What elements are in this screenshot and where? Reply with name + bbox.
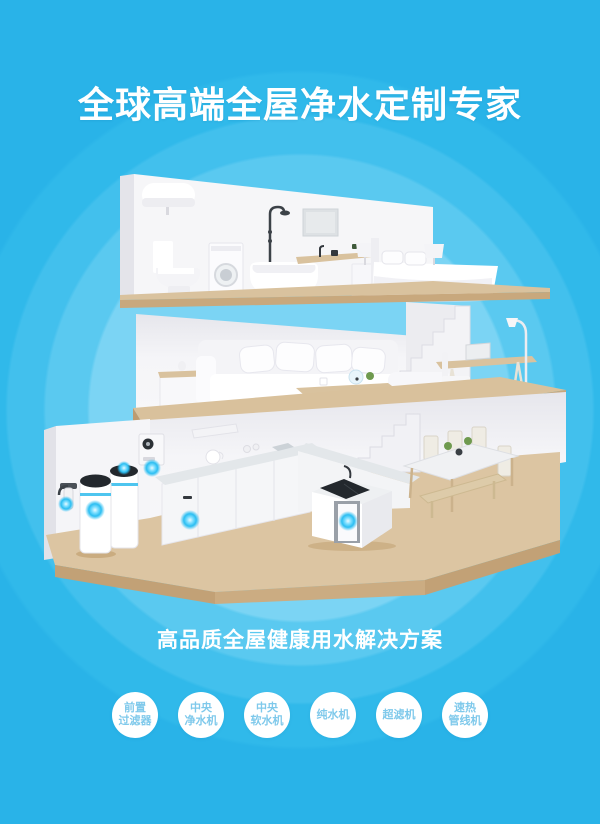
glow-dot [85, 500, 105, 520]
poster: 全球高端全屋净水定制专家 高品质全屋健康用水解决方案 前置过滤器 中央净水机 中… [0, 0, 600, 824]
jar [253, 444, 259, 450]
glow-dot [338, 511, 358, 531]
glow-dot [117, 461, 131, 475]
washing-machine [209, 243, 243, 294]
plant-small [366, 372, 374, 380]
badge-central-purifier: 中央净水机 [178, 692, 224, 738]
badge-row: 前置过滤器 中央净水机 中央软水机 纯水机 超滤机 速热管线机 [0, 692, 600, 738]
table-plant [444, 442, 452, 450]
laptop [466, 343, 490, 360]
glow-dot [143, 459, 161, 477]
badge-pure-water: 纯水机 [310, 692, 356, 738]
table-plant [464, 437, 472, 445]
floor-top [120, 174, 550, 308]
glow-dot [58, 496, 74, 512]
badge-ultrafiltration: 超滤机 [376, 692, 422, 738]
top-wall-edge [120, 174, 134, 300]
fishbowl [349, 370, 363, 384]
badge-central-softener: 中央软水机 [244, 692, 290, 738]
jar [244, 446, 251, 453]
floor-ground [44, 392, 566, 604]
mirror [303, 209, 338, 236]
teapot [456, 449, 463, 456]
badge-instant-hot: 速热管线机 [442, 692, 488, 738]
cabinet-handle [183, 496, 192, 499]
central-softener-tank [110, 465, 138, 548]
page-title: 全球高端全屋净水定制专家 [0, 76, 600, 128]
badge-pre-filter: 前置过滤器 [112, 692, 158, 738]
tagline: 高品质全屋健康用水解决方案 [0, 624, 600, 654]
glow-dot [180, 510, 200, 530]
